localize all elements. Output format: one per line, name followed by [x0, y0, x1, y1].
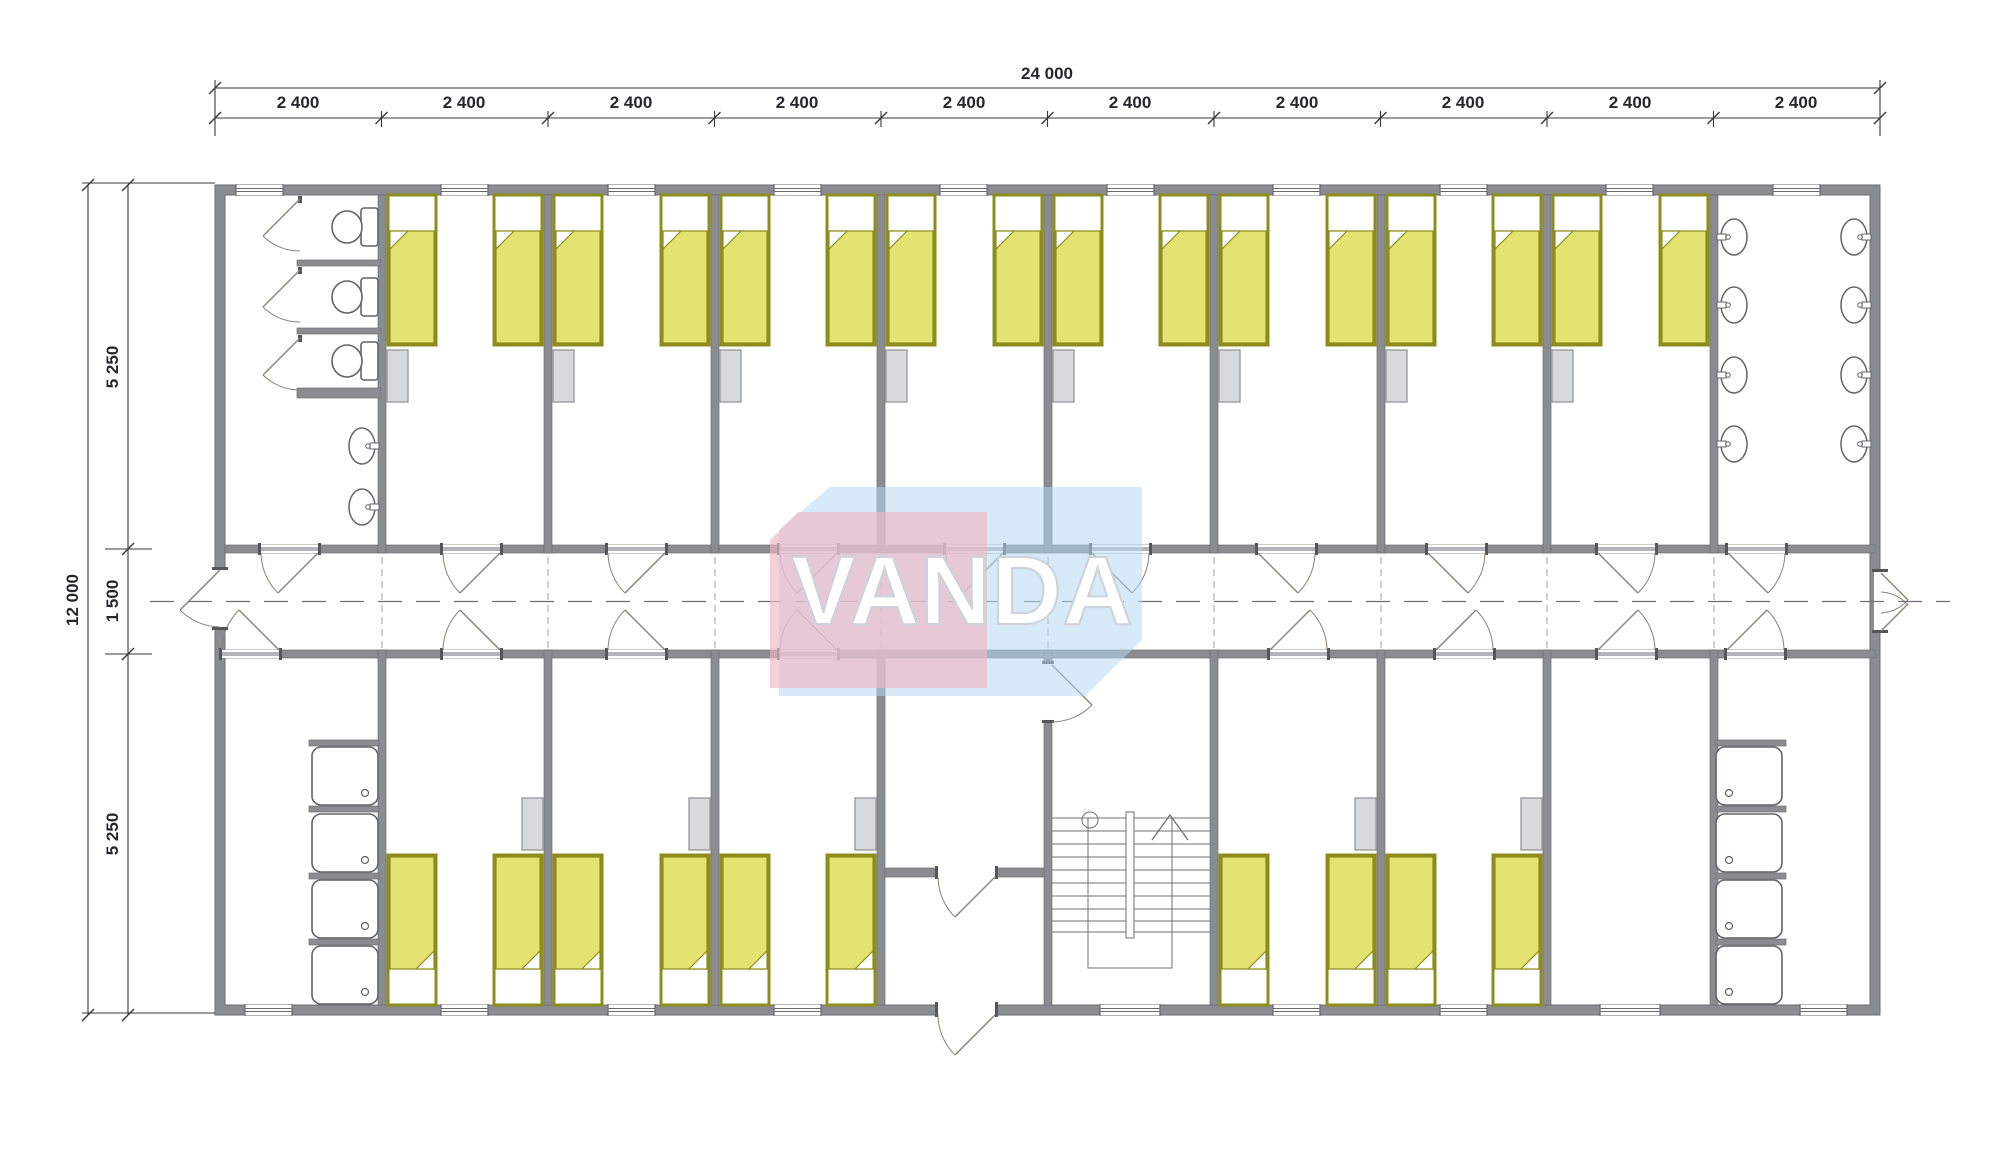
- watermark-logo: VANDA: [791, 528, 1131, 658]
- dim-label-bay-6: 2 400: [1109, 93, 1152, 113]
- dim-label-bay-7: 2 400: [1276, 93, 1319, 113]
- dim-label-bay-5: 2 400: [943, 93, 986, 113]
- dim-label-top-depth: 5 250: [103, 346, 123, 389]
- dim-label-corridor-width: 1 500: [103, 580, 123, 623]
- dim-label-bottom-depth: 5 250: [103, 813, 123, 856]
- dim-label-bay-3: 2 400: [610, 93, 653, 113]
- dim-label-bay-10: 2 400: [1775, 93, 1818, 113]
- dim-label-bay-2: 2 400: [443, 93, 486, 113]
- dim-label-bay-8: 2 400: [1442, 93, 1485, 113]
- floorplan-canvas: VANDA 24 000 2 400 2 400 2 400 2 400 2 4…: [0, 0, 2000, 1175]
- dim-label-bay-9: 2 400: [1609, 93, 1652, 113]
- dim-label-bay-4: 2 400: [776, 93, 819, 113]
- dim-label-total-width: 24 000: [1021, 64, 1073, 84]
- dim-label-total-height: 12 000: [63, 574, 83, 626]
- dim-label-bay-1: 2 400: [277, 93, 320, 113]
